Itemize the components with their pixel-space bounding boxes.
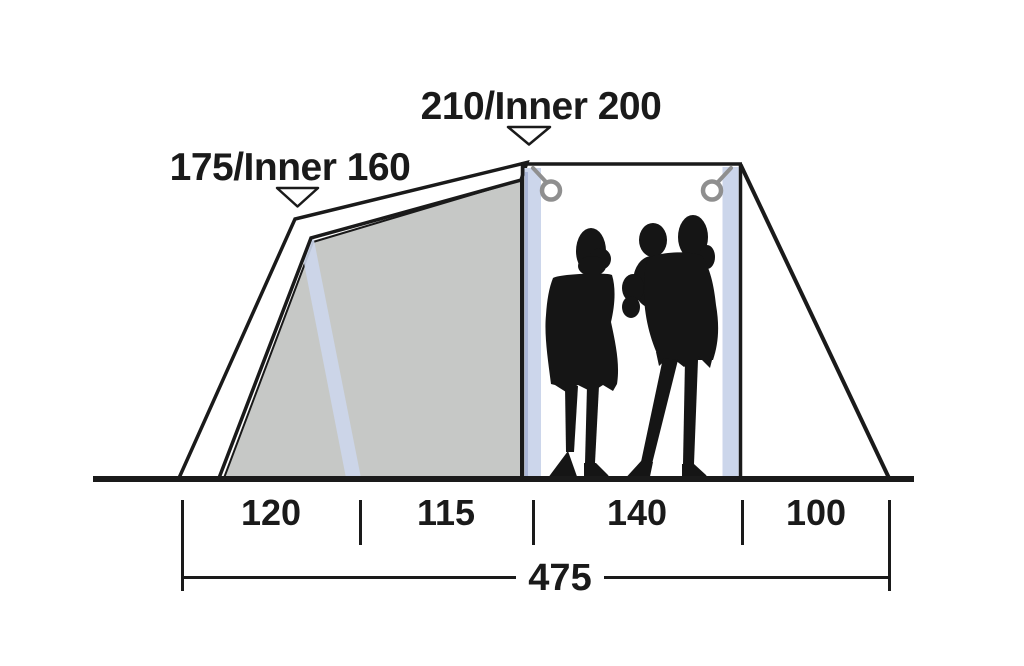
- hanging-ring-icon: [542, 182, 560, 200]
- woman-skirt-hem: [551, 384, 617, 392]
- adult-back-foot: [682, 464, 707, 477]
- adult-front-leg: [641, 358, 678, 464]
- ground-line: [93, 476, 914, 482]
- height-arrow-center-icon: [508, 127, 550, 145]
- tent-dimension-diagram: 175/Inner 160 210/Inner 200 120 115 140 …: [0, 0, 1024, 666]
- segment-length-3: 140: [607, 492, 667, 533]
- segment-length-1: 120: [241, 492, 301, 533]
- diagram-svg: 175/Inner 160 210/Inner 200 120 115 140 …: [0, 0, 1024, 666]
- woman-silhouette: [545, 228, 618, 477]
- adult-torso: [644, 252, 718, 360]
- height-label-center: 210/Inner 200: [421, 85, 662, 128]
- woman-back-foot: [549, 451, 577, 477]
- hanging-ring-icon: [703, 182, 721, 200]
- height-label-left: 175/Inner 160: [170, 146, 411, 189]
- woman-torso: [545, 274, 618, 384]
- segment-length-2: 115: [417, 492, 475, 533]
- adult-front-foot: [627, 460, 653, 477]
- child-knee: [622, 296, 640, 318]
- woman-front-foot: [584, 463, 609, 477]
- child-head: [639, 223, 667, 257]
- rear-slope-line: [741, 165, 889, 478]
- total-length-label: 475: [528, 557, 591, 599]
- segment-length-4: 100: [786, 492, 846, 533]
- woman-front-leg: [585, 386, 599, 463]
- adult-carrying-child-silhouette: [622, 215, 718, 477]
- height-arrow-left-icon: [277, 188, 318, 207]
- adult-back-leg: [683, 360, 698, 464]
- woman-back-leg: [565, 386, 578, 452]
- air-pole-right: [723, 167, 739, 478]
- woman-hair: [578, 256, 606, 276]
